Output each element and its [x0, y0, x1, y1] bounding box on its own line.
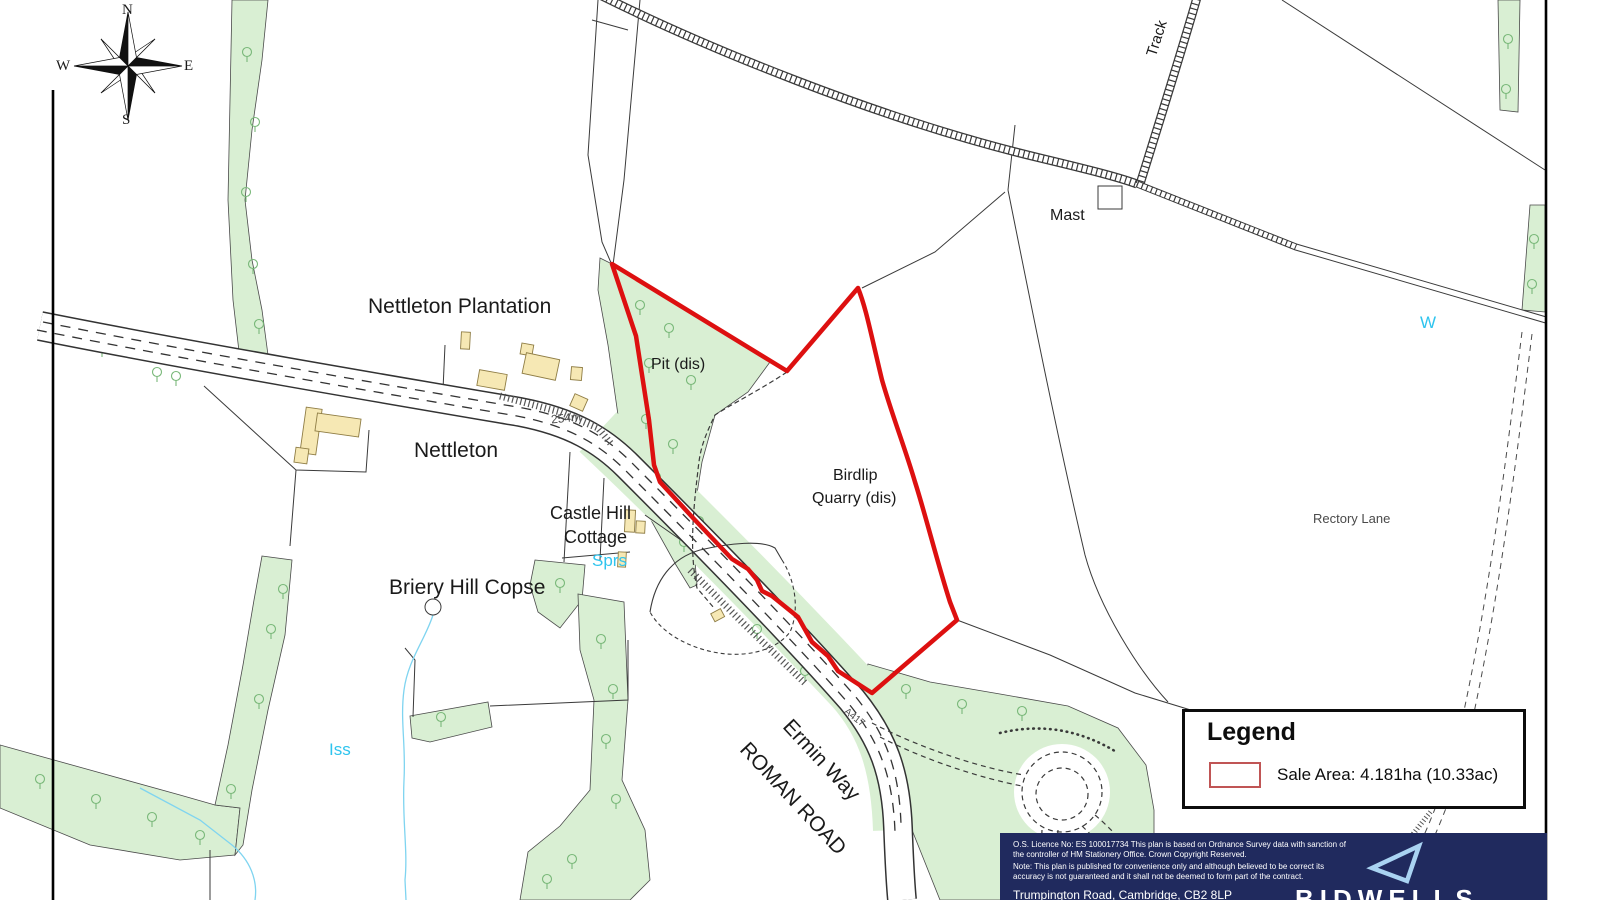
compass-e: E: [184, 58, 193, 75]
label-birdlip-1: Birdlip: [833, 467, 877, 485]
site-plan-page: N E S W Nettleton Plantation Nettleton C…: [0, 0, 1600, 900]
sale-area-swatch: [1209, 762, 1261, 788]
label-castle-hill-2: Cottage: [564, 528, 627, 548]
label-pit-dis: Pit (dis): [651, 356, 705, 374]
address-text: Trumpington Road, Cambridge, CB2 8LP: [1013, 888, 1232, 900]
label-nettleton-plantation: Nettleton Plantation: [368, 295, 551, 318]
label-rectory-lane: Rectory Lane: [1313, 512, 1390, 526]
label-mast: Mast: [1050, 207, 1085, 225]
legend-panel: Legend Sale Area: 4.181ha (10.33ac): [1182, 709, 1526, 809]
label-iss: Iss: [329, 741, 351, 760]
compass-w: W: [56, 58, 70, 75]
label-castle-hill-1: Castle Hill: [550, 504, 631, 524]
label-briery-hill-copse: Briery Hill Copse: [389, 576, 545, 599]
os-licence-text: O.S. Licence No: ES 100017734 This plan …: [1013, 840, 1348, 861]
brand-wordmark: BIDWELLS: [1295, 884, 1479, 900]
mast-building: [1098, 186, 1122, 209]
label-birdlip-2: Quarry (dis): [812, 490, 896, 508]
legend-title: Legend: [1207, 718, 1296, 747]
track-top: [598, 0, 1137, 184]
compass-s: S: [122, 112, 130, 129]
compass-rose-icon: [74, 12, 182, 120]
well-symbol: [425, 599, 441, 615]
disclaimer-text: Note: This plan is published for conveni…: [1013, 862, 1348, 883]
sale-area-text: Sale Area: 4.181ha (10.33ac): [1277, 765, 1498, 785]
rectory-lane-track: [1398, 332, 1532, 900]
label-nettleton: Nettleton: [414, 439, 498, 462]
compass-n: N: [122, 2, 133, 19]
label-w-water: W: [1420, 314, 1436, 333]
roundabout-island: [1014, 744, 1110, 840]
label-sprs: Sprs: [592, 552, 627, 571]
bidwells-logo-icon: [1355, 836, 1425, 886]
track-east: [1137, 184, 1546, 320]
